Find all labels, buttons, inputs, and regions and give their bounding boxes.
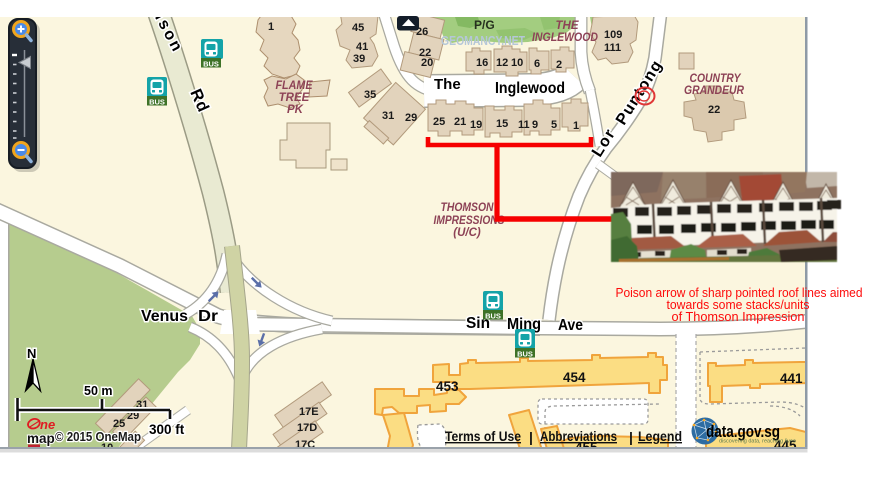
svg-text:Dr: Dr <box>198 308 218 325</box>
svg-text:109: 109 <box>604 29 622 41</box>
svg-text:29: 29 <box>405 112 417 124</box>
svg-text:11: 11 <box>518 119 530 131</box>
svg-text:Venus: Venus <box>141 308 188 325</box>
svg-text:2: 2 <box>556 59 562 71</box>
svg-text:12: 12 <box>496 57 508 69</box>
svg-text:BUS: BUS <box>203 60 219 69</box>
svg-text:N: N <box>27 346 36 361</box>
svg-text:Legend: Legend <box>638 428 682 444</box>
svg-text:THOMSON: THOMSON <box>441 202 495 214</box>
svg-text:111: 111 <box>604 42 621 54</box>
svg-text:Abbreviations: Abbreviations <box>540 428 617 444</box>
svg-text:15: 15 <box>496 118 508 130</box>
svg-text:COUNTRY: COUNTRY <box>690 73 742 85</box>
svg-text:PK: PK <box>287 104 304 116</box>
svg-text:17D: 17D <box>297 422 317 434</box>
svg-text:17E: 17E <box>299 406 319 418</box>
svg-text:|: | <box>529 429 533 445</box>
svg-text:20: 20 <box>421 57 433 69</box>
svg-text:25: 25 <box>113 418 125 430</box>
svg-text:441: 441 <box>780 371 803 386</box>
svg-text:Ave: Ave <box>558 317 583 334</box>
svg-text:39: 39 <box>353 53 365 65</box>
svg-text:31: 31 <box>382 110 394 122</box>
svg-text:Inglewood: Inglewood <box>495 80 565 97</box>
svg-text:GRANDEUR: GRANDEUR <box>684 85 745 97</box>
svg-text:35: 35 <box>364 89 376 101</box>
svg-text:BUS: BUS <box>485 312 501 321</box>
svg-text:454: 454 <box>563 370 586 385</box>
svg-text:BUS: BUS <box>517 350 533 359</box>
svg-text:453: 453 <box>436 379 459 394</box>
svg-text:9: 9 <box>532 119 538 131</box>
svg-text:TREE: TREE <box>279 92 310 104</box>
svg-text:GEOMANCY.NET: GEOMANCY.NET <box>441 33 525 48</box>
svg-text:19: 19 <box>470 119 482 131</box>
svg-text:IMPRESSIONS: IMPRESSIONS <box>434 215 505 227</box>
svg-text:|: | <box>629 429 633 445</box>
svg-text:Terms of Use: Terms of Use <box>445 428 521 444</box>
svg-text:1: 1 <box>268 21 274 33</box>
svg-text:© 2015 OneMap: © 2015 OneMap <box>55 430 141 444</box>
svg-text:BUS: BUS <box>149 98 165 107</box>
svg-text:discovering data, reaching liv: discovering data, reaching lives <box>719 439 796 445</box>
svg-text:P/G: P/G <box>474 18 495 32</box>
svg-text:21: 21 <box>454 116 466 128</box>
svg-text:(U/C): (U/C) <box>453 227 481 239</box>
svg-text:25: 25 <box>433 116 445 128</box>
svg-text:of Thomson Impression: of Thomson Impression <box>672 309 805 324</box>
svg-text:16: 16 <box>476 57 488 69</box>
svg-text:5: 5 <box>551 119 557 131</box>
svg-text:10: 10 <box>511 57 523 69</box>
svg-text:ne: ne <box>40 417 55 432</box>
svg-text:1: 1 <box>573 120 579 132</box>
svg-text:THE: THE <box>556 20 579 32</box>
svg-text:22: 22 <box>708 104 720 116</box>
svg-text:INGLEWOOD: INGLEWOOD <box>532 32 598 44</box>
svg-text:6: 6 <box>534 58 540 70</box>
svg-text:300 ft: 300 ft <box>149 422 185 437</box>
svg-text:FLAME: FLAME <box>276 80 313 92</box>
svg-text:The: The <box>434 76 461 93</box>
svg-text:50 m: 50 m <box>84 384 113 398</box>
svg-text:41: 41 <box>356 41 368 53</box>
svg-text:map: map <box>27 431 55 446</box>
svg-text:45: 45 <box>352 22 364 34</box>
